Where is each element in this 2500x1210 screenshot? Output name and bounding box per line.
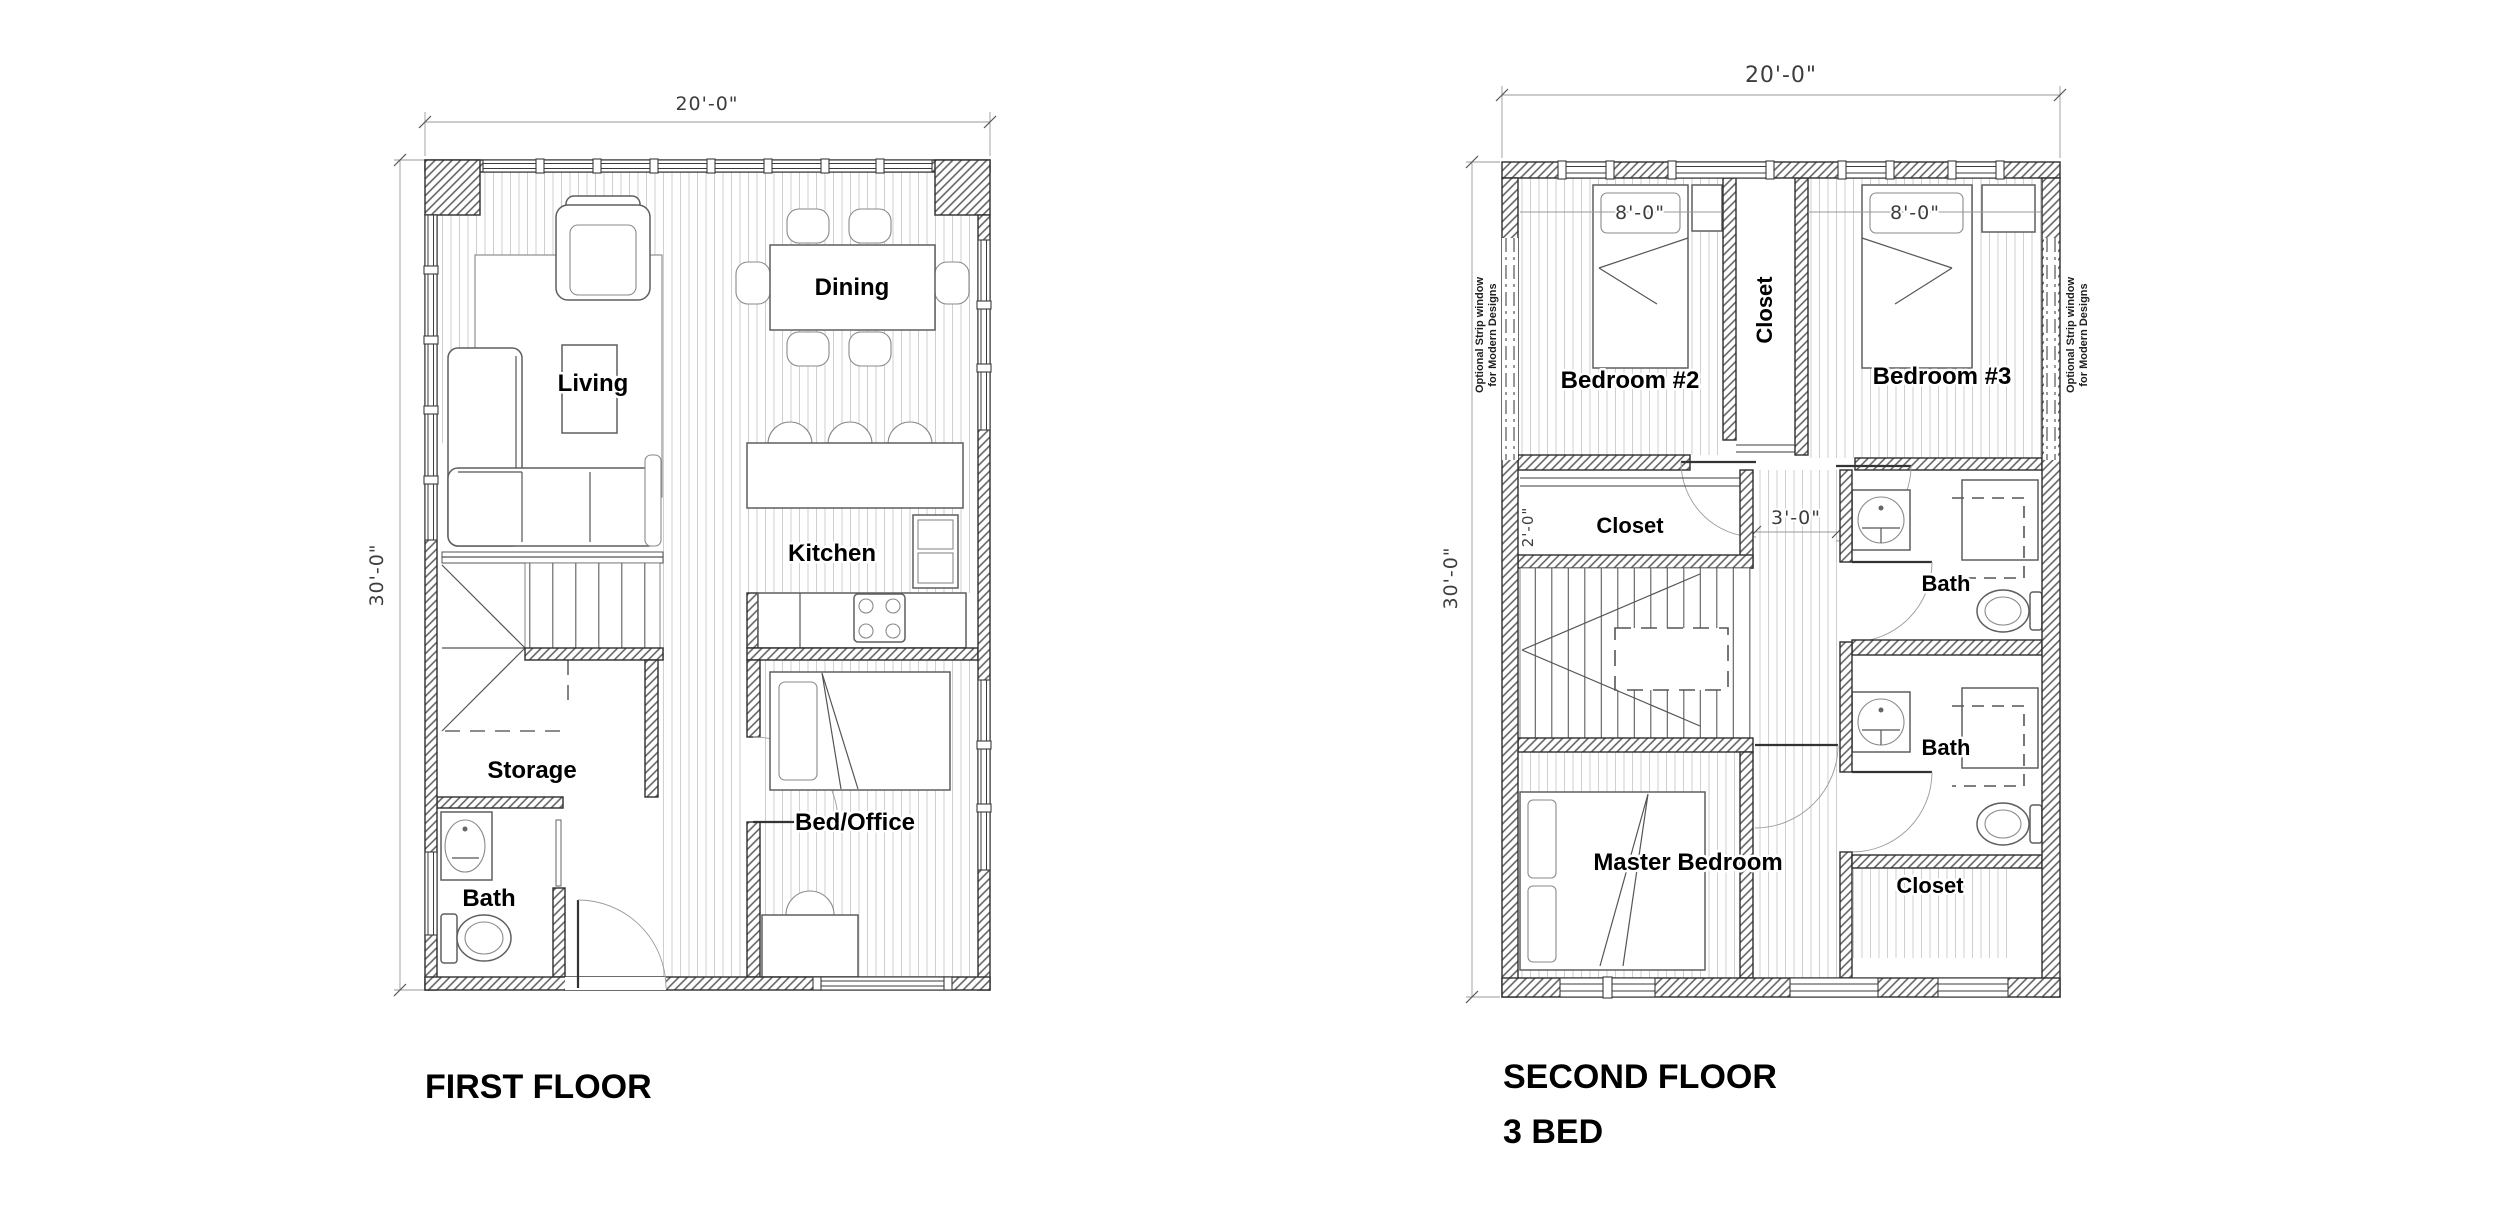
corner-post xyxy=(935,160,990,215)
optional-strip-window xyxy=(1502,238,1518,460)
stair-opening xyxy=(1615,628,1728,690)
door-swing xyxy=(1852,772,1932,852)
first-floor-plan: 20'-0" 30'-0" xyxy=(366,93,996,1106)
dining-chair xyxy=(849,209,891,243)
bedroom2-dim: 8'-0" xyxy=(1615,202,1665,224)
second-floor-width-dim: 20'-0" xyxy=(1745,63,1817,88)
pillow xyxy=(1528,800,1556,878)
bedroom3-dim: 8'-0" xyxy=(1890,202,1940,224)
bottom-closet-label: Closet xyxy=(1896,873,1964,898)
door-swing xyxy=(1852,562,1932,642)
floor-plan-sheet: 20'-0" 30'-0" xyxy=(0,0,2500,1210)
kitchen-island xyxy=(747,443,963,508)
window xyxy=(978,240,990,430)
pillow xyxy=(1528,886,1556,962)
svg-text:for Modern Designs: for Modern Designs xyxy=(2078,283,2090,386)
window xyxy=(1948,161,2004,179)
armchair xyxy=(556,196,650,300)
second-floor-plan: 20'-0" 30'-0" xyxy=(1440,63,2090,1151)
lower-bath xyxy=(1852,688,2042,852)
window xyxy=(978,680,990,870)
bathroom-door xyxy=(556,820,561,886)
toilet xyxy=(1977,803,2042,845)
stair-treads xyxy=(525,563,660,648)
hall-dim: 3'-0" xyxy=(1771,507,1821,529)
second-floor-height-dim: 30'-0" xyxy=(1440,546,1462,609)
optional-strip-window xyxy=(2044,238,2058,460)
dining-chair xyxy=(935,262,969,304)
svg-text:Optional Strip window: Optional Strip window xyxy=(1474,277,1486,394)
sink xyxy=(441,812,492,880)
stove xyxy=(854,594,905,642)
strip-window-note-left: Optional Strip window for Modern Designs xyxy=(1474,277,1499,394)
upper-bath xyxy=(1852,480,2042,655)
kitchen-label: Kitchen xyxy=(788,540,876,567)
second-floor-stairs xyxy=(1518,568,1753,752)
bed-office-label: Bed/Office xyxy=(795,809,915,836)
front-door-swing xyxy=(578,900,666,988)
second-floor-subtitle: 3 BED xyxy=(1503,1113,1603,1151)
dining-chair xyxy=(736,262,770,304)
bed xyxy=(1520,792,1705,970)
first-floor-title: FIRST FLOOR xyxy=(425,1068,652,1106)
first-floor-height-dim: 30'-0" xyxy=(366,543,388,606)
bath-label: Bath xyxy=(462,885,515,912)
window xyxy=(1668,161,1774,179)
top-closet: Closet xyxy=(1723,178,1808,455)
strip-window-note-right: Optional Strip window for Modern Designs xyxy=(2065,277,2090,394)
window xyxy=(1938,978,2008,997)
bed xyxy=(770,672,950,790)
toilet xyxy=(1977,590,2042,632)
window xyxy=(1790,978,1878,997)
window xyxy=(1560,977,1655,998)
svg-text:Optional Strip window: Optional Strip window xyxy=(2065,277,2077,394)
svg-text:for Modern Designs: for Modern Designs xyxy=(1487,283,1499,386)
window xyxy=(1558,161,1614,179)
shower xyxy=(1952,480,2038,578)
sink xyxy=(1852,490,1910,550)
living-label: Living xyxy=(558,370,629,397)
left-closet-dim: 2'-0" xyxy=(1519,507,1537,548)
second-floor-title: SECOND FLOOR xyxy=(1503,1058,1777,1096)
bedroom2-label: Bedroom #2 xyxy=(1561,367,1700,394)
top-closet-label: Closet xyxy=(1752,276,1777,344)
window xyxy=(1838,161,1894,179)
left-closet: Closet 2'-0" xyxy=(1518,470,1753,568)
nightstand xyxy=(1692,185,1722,231)
toilet xyxy=(441,914,511,963)
front-door-opening xyxy=(565,977,666,990)
lower-bath-label: Bath xyxy=(1922,735,1971,760)
desk xyxy=(762,915,858,977)
dining-chair xyxy=(787,332,829,366)
dining-chair xyxy=(849,332,891,366)
window xyxy=(820,977,945,990)
left-closet-label: Closet xyxy=(1596,513,1664,538)
storage-label: Storage xyxy=(487,757,576,784)
dining-chair xyxy=(787,209,829,243)
first-floor-width-dim: 20'-0" xyxy=(675,93,738,115)
bedroom3-label: Bedroom #3 xyxy=(1873,363,2012,390)
fridge xyxy=(913,515,958,588)
corner-post xyxy=(425,160,480,215)
window xyxy=(425,215,437,540)
upper-bath-label: Bath xyxy=(1922,571,1971,596)
nightstand xyxy=(1982,185,2035,232)
window xyxy=(425,852,437,935)
master-bedroom-label: Master Bedroom xyxy=(1593,849,1782,876)
dining-label: Dining xyxy=(815,274,890,301)
sink xyxy=(1852,692,1910,752)
floor-plan-drawing: 20'-0" 30'-0" xyxy=(0,0,2500,1210)
